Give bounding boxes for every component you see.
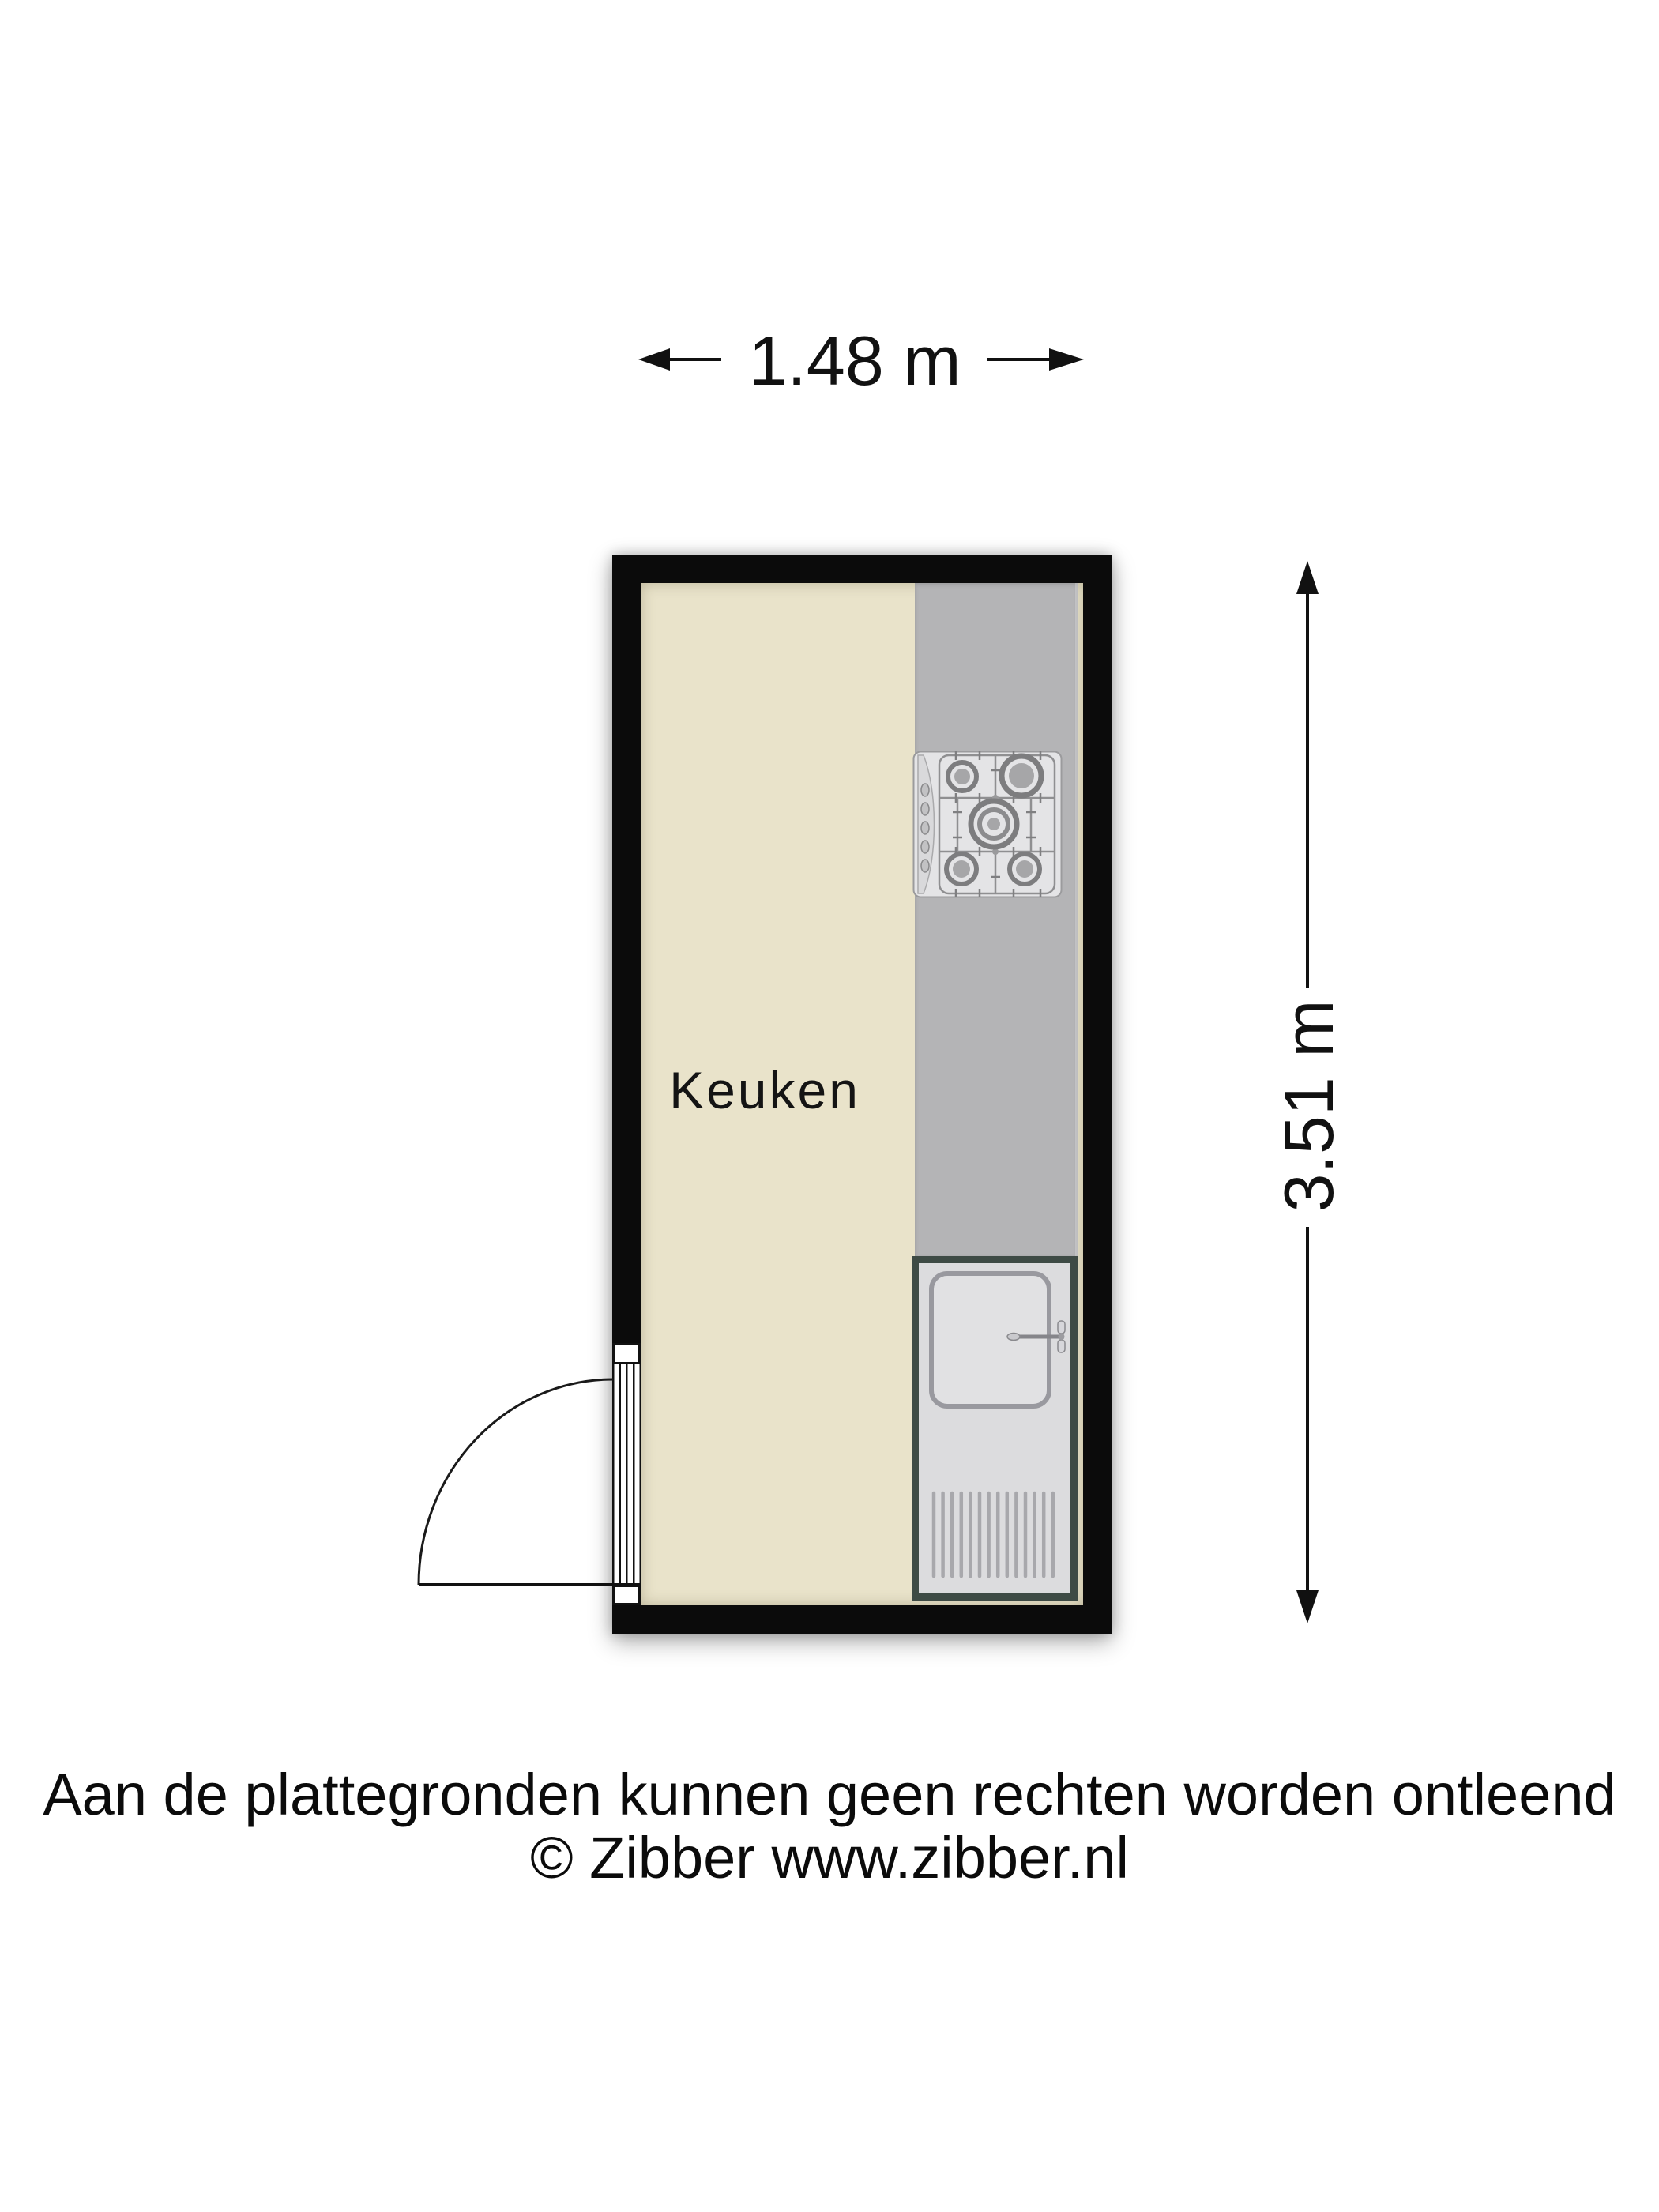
sink-unit-icon (912, 1256, 1078, 1601)
copyright-text: © Zibber www.zibber.nl (0, 1826, 1659, 1890)
arrow-right-icon (1049, 348, 1084, 371)
arrow-up-icon (1296, 561, 1319, 594)
kitchen-counter (915, 583, 1078, 1256)
disclaimer-text: Aan de plattegronden kunnen geen rechten… (0, 1763, 1659, 1826)
footer: Aan de plattegronden kunnen geen rechten… (0, 1763, 1659, 1890)
gas-cooktop-icon (912, 750, 1063, 898)
floorplan-walls: Keuken (612, 555, 1112, 1634)
height-dimension: 3.51 m (1260, 549, 1355, 1635)
arrow-left-icon (638, 348, 670, 371)
width-dimension-label: 1.48 m (748, 322, 961, 400)
door-swing-arc (399, 1343, 652, 1596)
width-dimension: 1.48 m (628, 320, 1094, 399)
height-dimension-label: 3.51 m (1270, 999, 1348, 1212)
room-label: Keuken (669, 1060, 860, 1120)
kitchen-floor: Keuken (641, 583, 1083, 1605)
arrow-down-icon (1296, 1590, 1319, 1623)
